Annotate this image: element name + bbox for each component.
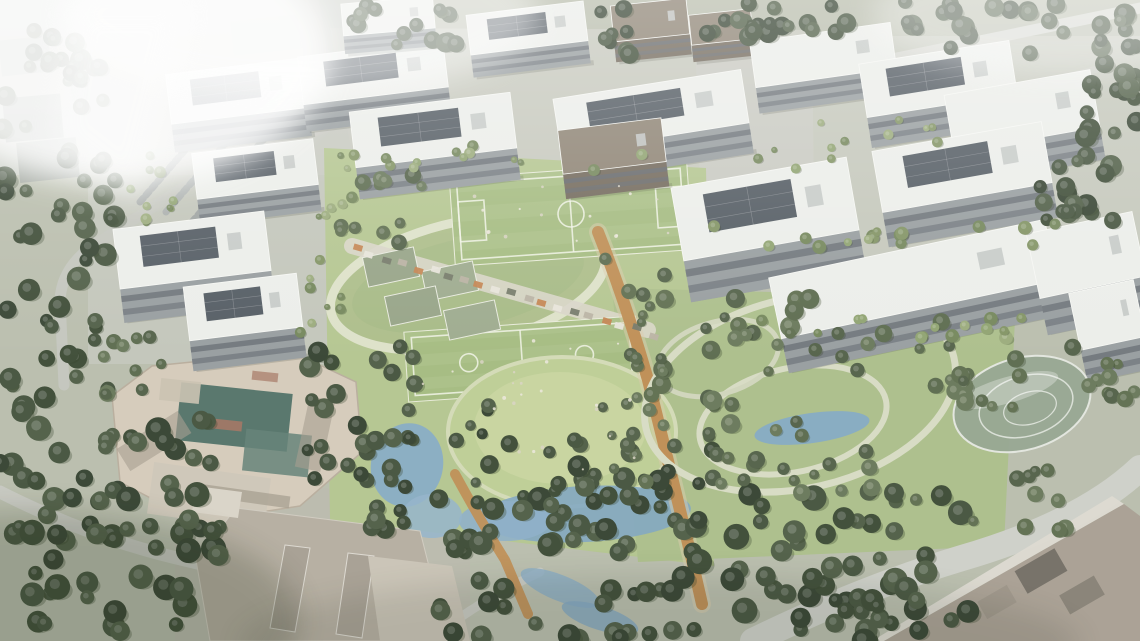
campus-rendering-stage — [0, 0, 1140, 641]
haze-overlay-layer — [0, 0, 1140, 641]
campus-aerial-rendering — [0, 0, 1140, 641]
